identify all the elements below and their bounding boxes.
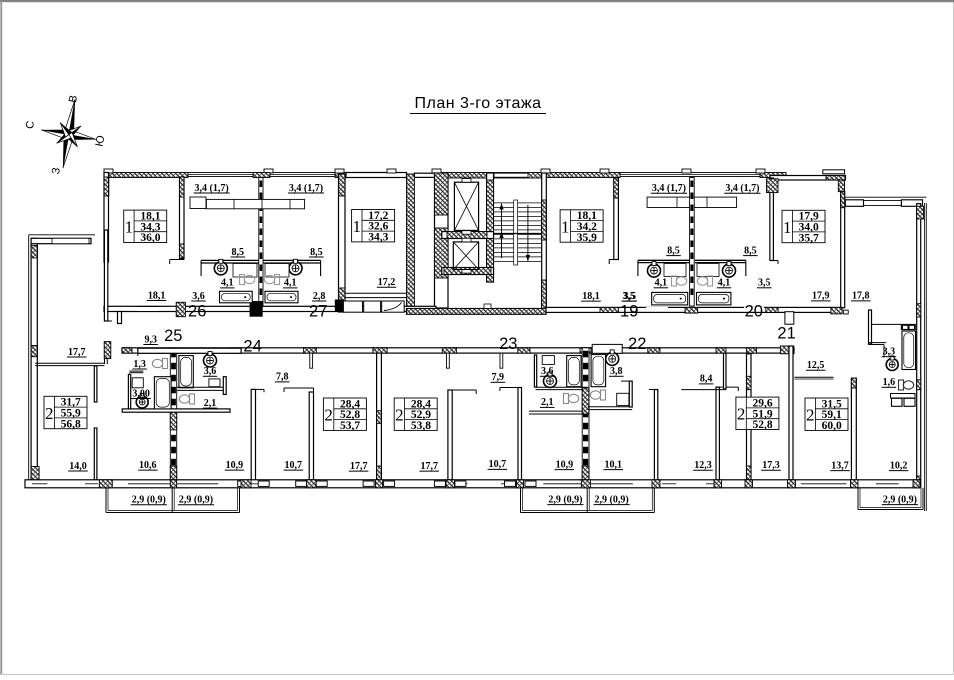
svg-text:3,3: 3,3 xyxy=(883,347,896,358)
svg-text:3,4 (1,7): 3,4 (1,7) xyxy=(195,183,229,194)
svg-text:1: 1 xyxy=(125,218,134,237)
svg-text:2,9 (0,9): 2,9 (0,9) xyxy=(179,495,213,506)
svg-text:22: 22 xyxy=(628,335,646,353)
svg-text:17,8: 17,8 xyxy=(852,291,870,302)
svg-text:52,8: 52,8 xyxy=(753,419,773,431)
svg-text:18,1: 18,1 xyxy=(148,290,166,301)
svg-text:3,6: 3,6 xyxy=(541,366,554,377)
svg-text:3,8: 3,8 xyxy=(610,366,623,377)
svg-text:2: 2 xyxy=(395,406,404,425)
svg-text:10,7: 10,7 xyxy=(489,459,507,470)
svg-text:8,5: 8,5 xyxy=(667,245,680,256)
svg-text:10,9: 10,9 xyxy=(226,460,244,471)
svg-text:2,9 (0,9): 2,9 (0,9) xyxy=(595,494,629,505)
svg-text:2: 2 xyxy=(737,405,746,424)
svg-text:25: 25 xyxy=(164,327,182,345)
svg-text:2: 2 xyxy=(45,404,54,423)
svg-text:1,6: 1,6 xyxy=(883,377,896,388)
svg-text:24: 24 xyxy=(243,337,261,355)
svg-text:17,7: 17,7 xyxy=(350,461,368,472)
svg-text:План 3-го этажа: План 3-го этажа xyxy=(414,95,541,112)
svg-text:12,5: 12,5 xyxy=(807,360,825,371)
svg-text:56,8: 56,8 xyxy=(61,418,81,430)
svg-text:3,6: 3,6 xyxy=(192,291,205,302)
svg-text:34,3: 34,3 xyxy=(368,232,388,244)
svg-text:3,6: 3,6 xyxy=(204,366,217,377)
svg-text:35,7: 35,7 xyxy=(799,232,819,244)
svg-text:4,1: 4,1 xyxy=(718,278,731,289)
svg-text:18,1: 18,1 xyxy=(582,291,600,302)
svg-text:3,4 (1,7): 3,4 (1,7) xyxy=(725,183,759,194)
svg-text:10,7: 10,7 xyxy=(285,460,303,471)
svg-text:10,6: 10,6 xyxy=(139,460,157,471)
svg-text:53,7: 53,7 xyxy=(340,420,360,432)
svg-text:3,4 (1,7): 3,4 (1,7) xyxy=(652,183,686,194)
svg-text:53,8: 53,8 xyxy=(411,420,431,432)
svg-text:3,5: 3,5 xyxy=(758,278,771,289)
svg-text:12,3: 12,3 xyxy=(694,460,712,471)
svg-text:2,9 (0,9): 2,9 (0,9) xyxy=(132,495,166,506)
svg-text:21: 21 xyxy=(777,324,795,342)
svg-text:35,9: 35,9 xyxy=(577,232,597,244)
svg-text:10,9: 10,9 xyxy=(556,459,574,470)
svg-text:1: 1 xyxy=(353,217,362,236)
svg-text:26: 26 xyxy=(188,303,206,321)
svg-text:3,5: 3,5 xyxy=(622,291,635,302)
svg-text:2,1: 2,1 xyxy=(204,398,217,409)
svg-text:17,3: 17,3 xyxy=(762,460,780,471)
svg-text:13,7: 13,7 xyxy=(831,460,849,471)
svg-text:8,5: 8,5 xyxy=(232,247,245,258)
svg-text:60,0: 60,0 xyxy=(822,420,842,432)
svg-text:3,00: 3,00 xyxy=(132,388,150,399)
svg-text:7,8: 7,8 xyxy=(276,372,289,383)
svg-text:10,2: 10,2 xyxy=(890,460,908,471)
svg-text:4,1: 4,1 xyxy=(221,278,234,289)
svg-text:2,8: 2,8 xyxy=(313,291,326,302)
svg-text:3,4 (1,7): 3,4 (1,7) xyxy=(289,183,323,194)
svg-text:2,9 (0,9): 2,9 (0,9) xyxy=(548,494,582,505)
svg-text:1: 1 xyxy=(783,218,792,237)
svg-text:10,1: 10,1 xyxy=(605,459,623,470)
svg-text:17,7: 17,7 xyxy=(68,347,86,358)
svg-text:1,3: 1,3 xyxy=(133,359,146,370)
svg-text:17,9: 17,9 xyxy=(812,291,830,302)
svg-text:36,0: 36,0 xyxy=(140,232,160,244)
svg-text:27: 27 xyxy=(309,303,327,321)
svg-text:2,1: 2,1 xyxy=(541,397,554,408)
svg-text:2: 2 xyxy=(806,406,815,425)
svg-text:17,7: 17,7 xyxy=(420,461,438,472)
svg-text:23: 23 xyxy=(499,335,517,353)
svg-text:8,5: 8,5 xyxy=(310,247,323,258)
svg-text:4,1: 4,1 xyxy=(284,278,297,289)
svg-text:9,3: 9,3 xyxy=(144,334,157,345)
svg-text:8,4: 8,4 xyxy=(700,374,713,385)
svg-text:14,0: 14,0 xyxy=(69,461,87,472)
svg-text:2: 2 xyxy=(324,406,333,425)
svg-text:19: 19 xyxy=(620,303,638,321)
svg-text:4,1: 4,1 xyxy=(655,278,668,289)
svg-text:2,9 (0,9): 2,9 (0,9) xyxy=(883,494,917,505)
svg-text:17,2: 17,2 xyxy=(378,277,396,288)
svg-text:1: 1 xyxy=(561,217,570,236)
svg-text:20: 20 xyxy=(745,303,763,321)
svg-text:8,5: 8,5 xyxy=(744,245,757,256)
svg-text:Ю: Ю xyxy=(94,134,108,147)
svg-text:7,9: 7,9 xyxy=(492,372,505,383)
